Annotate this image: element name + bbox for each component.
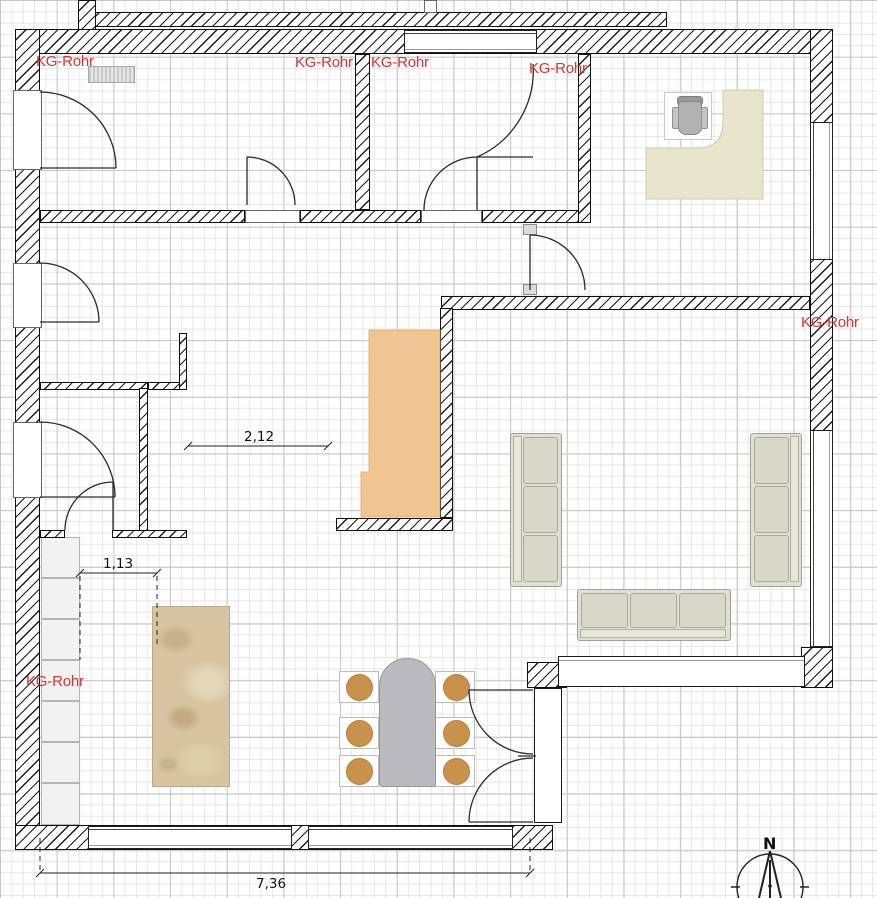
sofa-left[interactable] [510, 433, 562, 587]
office-chair-armrest [701, 107, 708, 129]
dining-chair [339, 755, 379, 787]
sofa-cushion [523, 535, 558, 582]
sofa-cushion [523, 437, 558, 484]
door-jamb [523, 224, 537, 235]
kg-rohr-label-6[interactable]: KG-Rohr [26, 673, 84, 690]
compass[interactable] [731, 851, 809, 898]
wall-neighbor-strip[interactable] [88, 12, 667, 27]
wall-mid-horizontal[interactable] [441, 296, 810, 310]
sofa-cushion [754, 535, 789, 582]
door-opening-left-1[interactable] [13, 90, 42, 170]
wall-room1-south-a[interactable] [40, 210, 245, 223]
wall-wardrobe-east[interactable] [440, 308, 453, 518]
kg-rohr-label-2[interactable]: KG-Rohr [295, 54, 353, 71]
wall-closet-north[interactable] [40, 382, 148, 390]
dining-chair [339, 671, 379, 703]
window-right-upper[interactable] [810, 122, 833, 260]
office-chair-seat [678, 101, 702, 135]
sofa-cushion [679, 593, 726, 628]
window-right-lower[interactable] [810, 430, 833, 647]
dining-table[interactable] [379, 658, 436, 787]
dining-chair [435, 717, 475, 749]
wall-closet-south-a[interactable] [40, 530, 65, 538]
dimension-label-hall[interactable]: 2,12 [244, 429, 274, 445]
wall-room2-south[interactable] [482, 210, 582, 223]
wall-closet-south-b[interactable] [112, 530, 187, 538]
door-opening-left-3[interactable] [13, 422, 42, 498]
counter-unit [41, 701, 80, 742]
door-jamb [523, 284, 537, 295]
wall-corner-southeast[interactable] [801, 647, 833, 688]
counter-unit [41, 783, 80, 825]
sofa-cushion [581, 593, 628, 628]
counter-unit [41, 537, 80, 578]
sofa-cushion [630, 593, 677, 628]
door-threshold-room1[interactable] [245, 210, 300, 223]
sofa-back [790, 436, 799, 582]
counter-unit [41, 742, 80, 783]
dining-chair [435, 671, 475, 703]
office-chair[interactable] [664, 92, 712, 140]
wall-hall-stub-v[interactable] [179, 333, 187, 390]
wall-glass-front[interactable] [558, 656, 805, 687]
dimension-label-island[interactable]: 1,13 [103, 556, 133, 572]
wardrobe[interactable] [361, 330, 440, 517]
sofa-right[interactable] [750, 433, 802, 587]
counter-unit [41, 578, 80, 619]
kitchen-island[interactable] [152, 606, 230, 787]
sofa-cushion [523, 486, 558, 533]
dining-chair [435, 755, 475, 787]
compass-north-label: N [763, 834, 776, 853]
wall-closet-east[interactable] [139, 388, 148, 533]
window-bottom-left[interactable] [88, 826, 292, 849]
floor-plan-canvas[interactable]: KG-Rohr KG-Rohr KG-Rohr KG-Rohr KG-Rohr … [0, 0, 877, 898]
dining-chair [339, 717, 379, 749]
office-chair-armrest [672, 107, 679, 129]
wall-joint-top [424, 0, 437, 13]
dimension-label-total[interactable]: 7,36 [256, 876, 286, 892]
wall-room-divider[interactable] [355, 54, 370, 210]
door-arcs[interactable] [40, 64, 585, 822]
sofa-cushion [754, 486, 789, 533]
wall-room1-south-b[interactable] [300, 210, 421, 223]
window-top[interactable] [404, 30, 537, 53]
sofa-bottom[interactable] [577, 589, 731, 641]
wall-wardrobe-south[interactable] [336, 518, 453, 531]
entrance-door-frame[interactable] [534, 688, 562, 823]
sofa-back [580, 629, 726, 638]
radiator[interactable] [88, 66, 135, 83]
door-opening-left-2[interactable] [13, 263, 42, 328]
wall-stub-topleft[interactable] [78, 0, 96, 30]
window-bottom-right[interactable] [308, 826, 513, 849]
dimension-lines[interactable] [36, 442, 534, 877]
kg-rohr-label-1[interactable]: KG-Rohr [36, 53, 94, 70]
wall-room2-east[interactable] [578, 54, 591, 223]
sofa-cushion [754, 437, 789, 484]
kg-rohr-label-4[interactable]: KG-Rohr [529, 60, 587, 77]
door-threshold-room2[interactable] [421, 210, 482, 223]
sofa-back [513, 436, 522, 582]
kg-rohr-label-3[interactable]: KG-Rohr [371, 54, 429, 71]
counter-unit [41, 619, 80, 660]
kg-rohr-label-5[interactable]: KG-Rohr [801, 314, 859, 331]
